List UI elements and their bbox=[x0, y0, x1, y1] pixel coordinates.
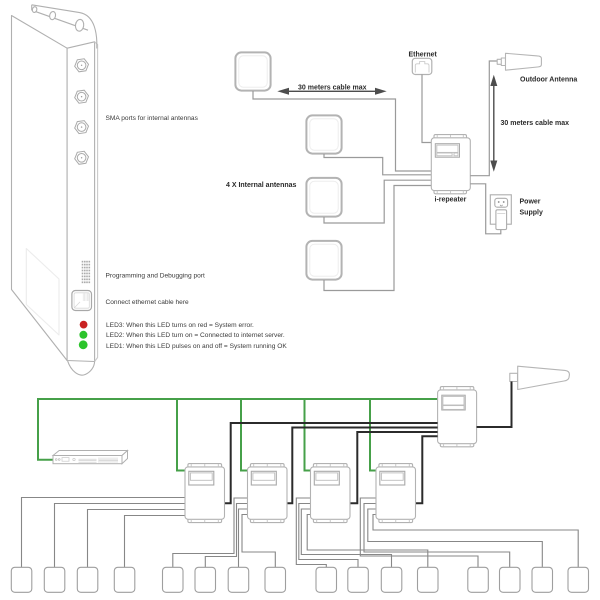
svg-text:30 meters cable max: 30 meters cable max bbox=[501, 120, 570, 127]
svg-text:i-repeater: i-repeater bbox=[435, 197, 467, 204]
svg-text:Supply: Supply bbox=[520, 210, 543, 217]
svg-text:4 X Internal antennas: 4 X Internal antennas bbox=[226, 182, 297, 189]
svg-text:Power: Power bbox=[520, 199, 541, 206]
svg-text:Programming and Debugging port: Programming and Debugging port bbox=[106, 273, 205, 280]
svg-text:Ethernet: Ethernet bbox=[409, 52, 438, 59]
svg-text:Outdoor Antenna: Outdoor Antenna bbox=[520, 77, 577, 84]
svg-text:LED2: When this LED turn on =: LED2: When this LED turn on = Connected … bbox=[106, 332, 285, 339]
svg-text:LED3: When this LED turns on: LED3: When this LED turns on red = Syste… bbox=[106, 322, 254, 329]
svg-text:Connect ethernet cable here: Connect ethernet cable here bbox=[106, 299, 190, 306]
svg-text:SMA ports for internal antenna: SMA ports for internal antennas bbox=[106, 115, 199, 122]
svg-text:30 meters cable max: 30 meters cable max bbox=[298, 85, 367, 92]
svg-text:LED1: When this LED pulses on: LED1: When this LED pulses on and off = … bbox=[106, 343, 287, 350]
